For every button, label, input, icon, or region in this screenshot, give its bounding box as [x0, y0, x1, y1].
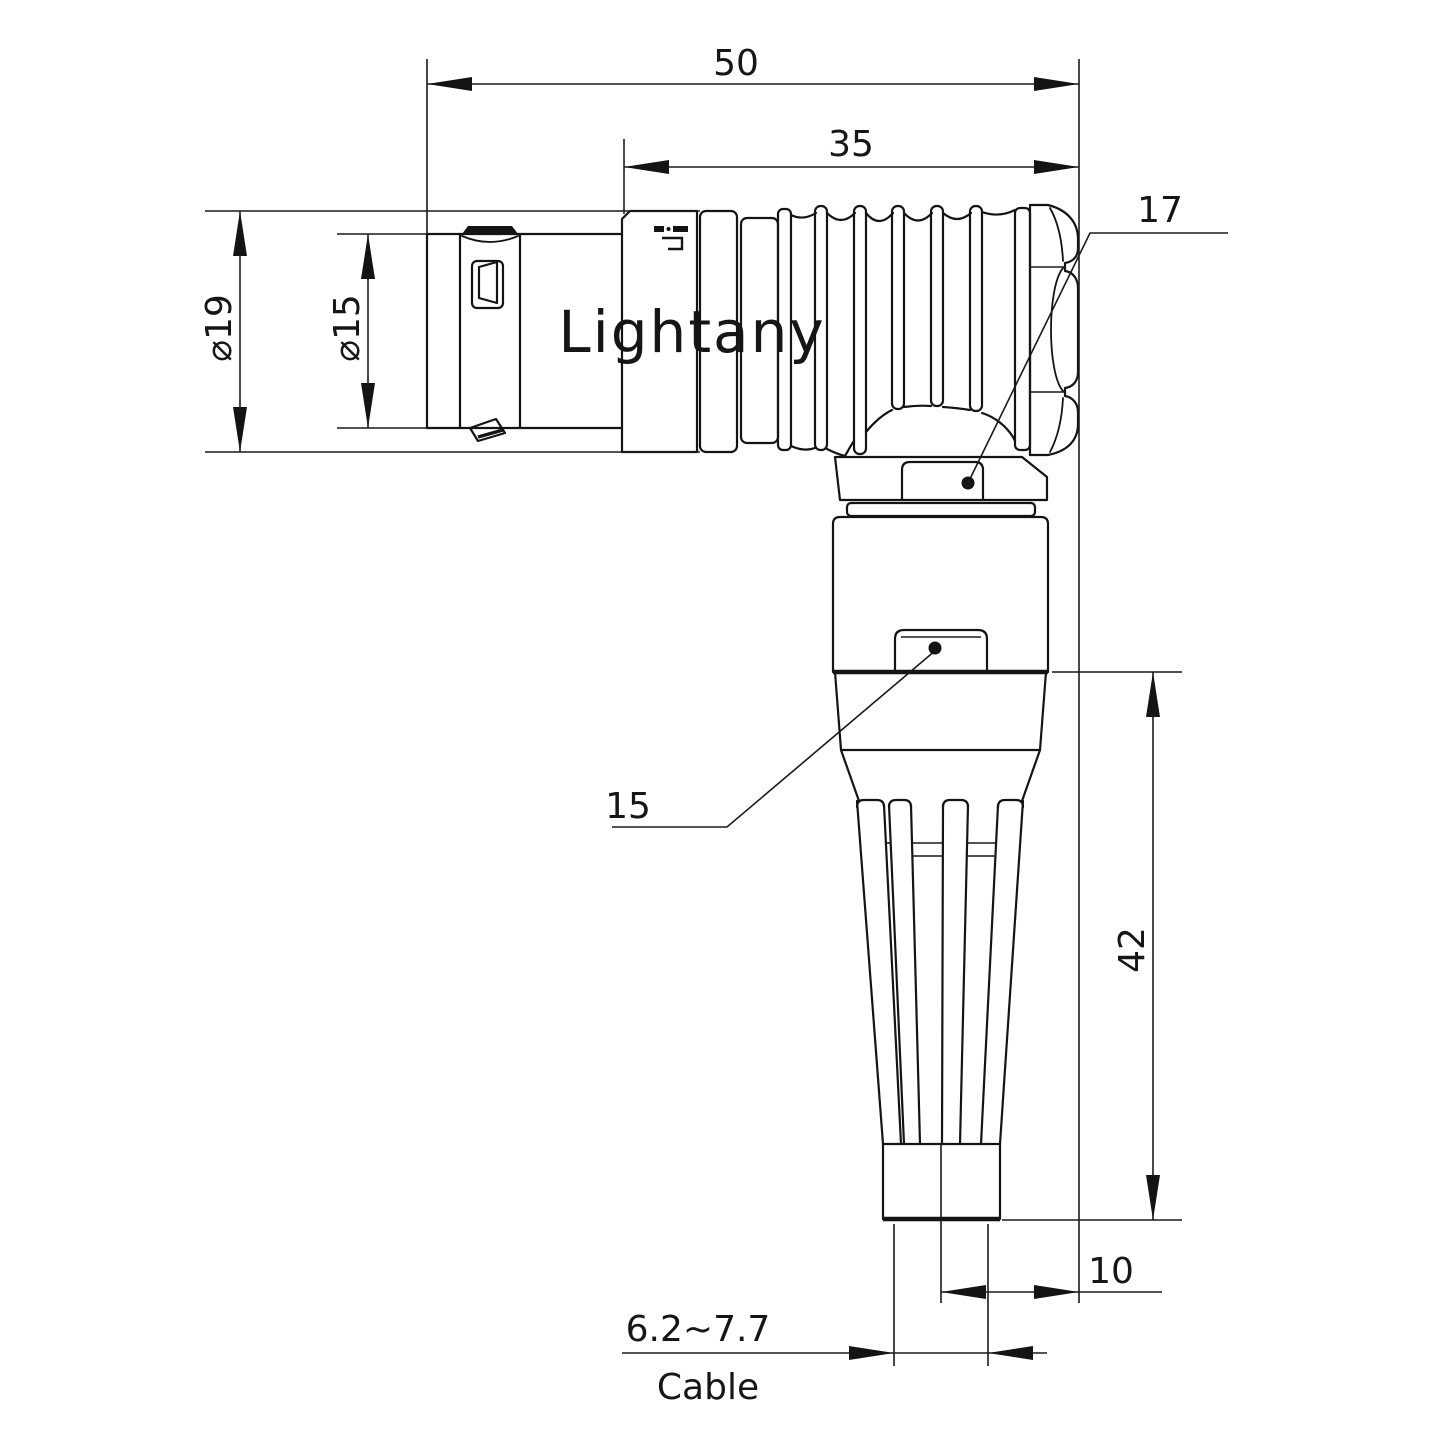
dim-d15-label: ⌀15 [327, 294, 368, 361]
latch-cap [462, 226, 518, 234]
ref-15-label: 15 [605, 786, 651, 827]
dim-10-label: 10 [1088, 1251, 1134, 1292]
arrowhead-icon [1034, 77, 1079, 91]
nut-facet-arc [1050, 398, 1063, 452]
dim-d19-label: ⌀19 [199, 294, 240, 361]
dimensions: 50 35 ⌀19 ⌀15 42 10 [199, 43, 1228, 1408]
boot-flute [960, 805, 968, 1144]
arrowhead-icon [988, 1346, 1033, 1360]
boot-flute [884, 805, 901, 1144]
arrowhead-icon [427, 77, 472, 91]
boot-slat-cap [998, 800, 1023, 807]
watermark-text: Lightany [558, 298, 825, 366]
ref-17-label: 17 [1137, 190, 1183, 231]
boot-edge [1000, 801, 1023, 1144]
dim-50-label: 50 [713, 43, 759, 84]
grip-rib [892, 206, 904, 409]
grip-sag [827, 213, 855, 220]
boot-slat-cap [943, 800, 968, 807]
arrowhead-icon [1146, 672, 1160, 717]
neck-left [841, 750, 859, 801]
boot-edge [857, 801, 883, 1144]
boot-slat-cap [857, 800, 884, 807]
elbow-hump [982, 413, 1015, 441]
leader-line-17 [968, 233, 1228, 483]
grip-bottom [791, 446, 815, 450]
grip-sag [904, 213, 932, 221]
coupling-band [835, 457, 1047, 500]
technical-drawing-page: Lightany [0, 0, 1440, 1440]
arrowhead-icon [941, 1285, 986, 1299]
arrowhead-icon [1034, 1285, 1079, 1299]
arrowhead-icon [624, 160, 669, 174]
ref-15-target-dot [929, 642, 942, 655]
keyway-recess [479, 262, 497, 303]
logo-hook-icon [662, 238, 682, 249]
cable-caption: Cable [657, 1367, 759, 1408]
connector-vertical-body [833, 457, 1048, 1219]
latch-cap-arc [462, 236, 518, 242]
grip-end-ring-right [1015, 208, 1030, 450]
elbow-hump [943, 407, 970, 410]
grip-rib [970, 206, 982, 411]
grip-rib [854, 206, 866, 454]
grip-bottom [827, 449, 845, 456]
arrowhead-icon [1146, 1175, 1160, 1220]
elbow-hump [845, 441, 854, 456]
arrowhead-icon [361, 234, 375, 279]
shoulder-left [835, 672, 841, 750]
elbow-hump [866, 410, 892, 432]
body-collar [847, 503, 1035, 516]
grip-rib [931, 206, 943, 406]
dim-35-label: 35 [828, 124, 874, 165]
logo-bar-icon [673, 226, 688, 232]
logo-dot-icon [667, 227, 671, 231]
dim-cable-range-label: 6.2~7.7 [626, 1309, 771, 1350]
logo-engraving-icon [654, 226, 664, 232]
dim-42-label: 42 [1112, 927, 1153, 973]
nut-profile [1048, 205, 1078, 455]
arrowhead-icon [361, 383, 375, 428]
grip-sag [943, 213, 971, 219]
grip-sag [982, 210, 1015, 215]
arrowhead-icon [233, 211, 247, 256]
shoulder-right [1040, 672, 1046, 750]
grip-sag [791, 213, 816, 218]
arrowhead-icon [1034, 160, 1079, 174]
connector-dimension-drawing: Lightany [0, 0, 1440, 1440]
nut-facet-arc [1050, 208, 1063, 261]
nut-facet-arc [1051, 268, 1063, 391]
arrowhead-icon [849, 1346, 894, 1360]
elbow-hump [904, 406, 931, 407]
leader-line-15 [612, 650, 936, 827]
arrowhead-icon [233, 407, 247, 452]
bottom-latch-shadow [478, 430, 503, 437]
grip-sag [866, 213, 893, 221]
boot-flute [889, 805, 904, 1144]
boot-slat-cap [889, 800, 911, 807]
neck-right [1022, 750, 1040, 801]
